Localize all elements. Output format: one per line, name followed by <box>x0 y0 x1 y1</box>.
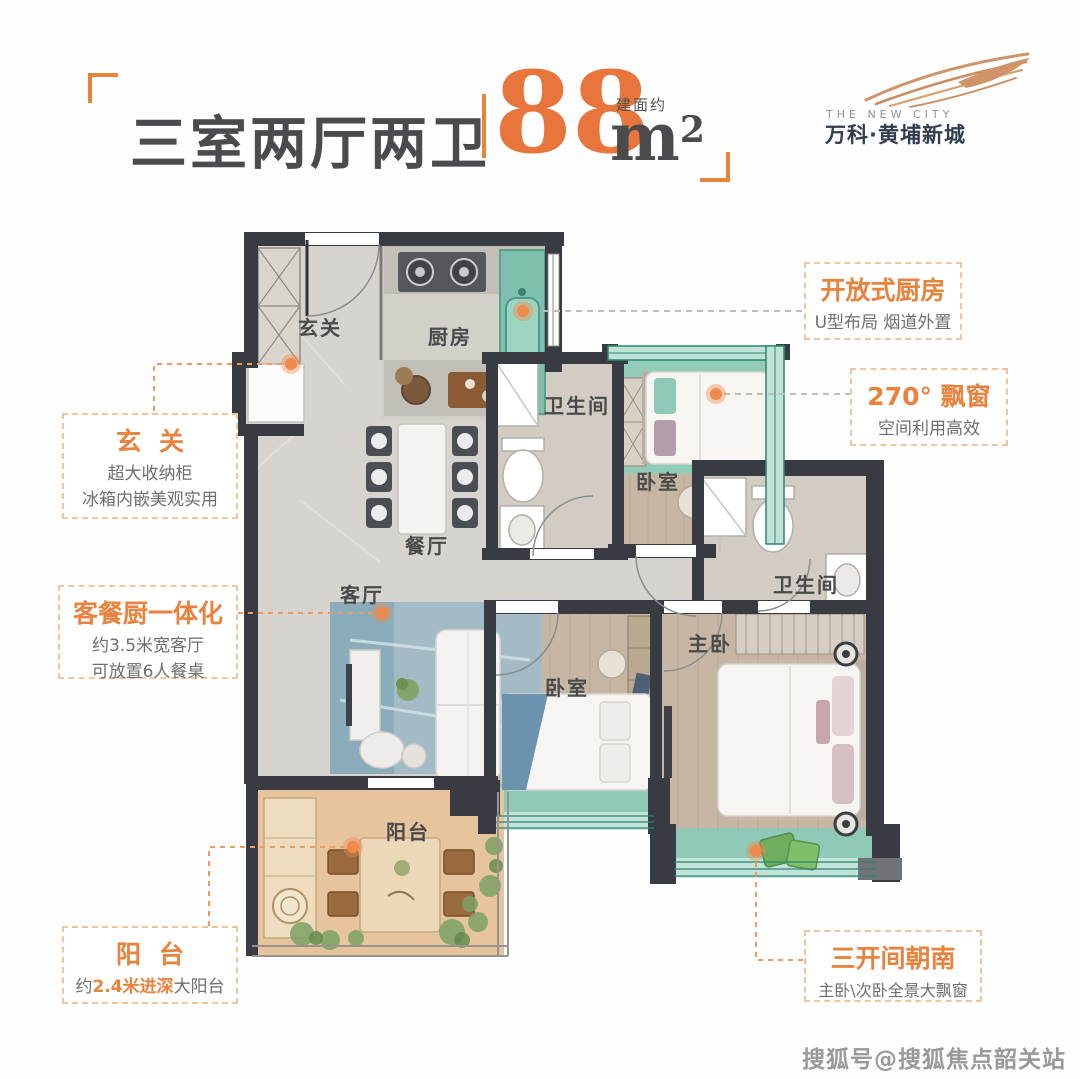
callout-south-line1: 主卧\次卧全景大飘窗 <box>806 979 980 1003</box>
callout-bay-window: 270° 飘窗 空间利用高效 <box>850 368 1008 446</box>
title-bracket-bottom-right <box>700 152 730 182</box>
promo-page: 玄关 厨房 卫生间 卧室 餐厅 客厅 卫生间 主卧 卧室 阳台 <box>0 0 1080 1079</box>
callout-balcony-prefix: 约 <box>75 977 92 997</box>
label-balcony: 阳台 <box>386 820 430 844</box>
room-dining <box>366 424 478 534</box>
callout-living-title: 客餐厨一体化 <box>60 599 236 629</box>
callout-living-line2: 可放置6人餐桌 <box>60 660 236 686</box>
callout-living: 客餐厨一体化 约3.5米宽客厅 可放置6人餐桌 <box>58 585 238 679</box>
label-master: 主卧 <box>688 632 732 656</box>
callout-entry-title: 玄关 <box>64 427 236 457</box>
callout-balcony: 阳台 约2.4米进深大阳台 <box>62 926 238 1004</box>
label-bath2: 卫生间 <box>773 573 839 597</box>
label-bedroom2: 卧室 <box>545 676 589 700</box>
label-dining: 餐厅 <box>405 534 449 558</box>
page-title: 三室两厅两卫 <box>130 98 490 180</box>
area-unit: m2 <box>610 104 705 170</box>
callout-kitchen-line1: U型布局 烟道外置 <box>806 311 960 337</box>
callout-entry-line1: 超大收纳柜 <box>64 462 236 488</box>
callout-balcony-suffix: 大阳台 <box>174 977 225 997</box>
callout-balcony-line1: 约2.4米进深大阳台 <box>64 975 236 1001</box>
title-bracket-top-left <box>88 73 118 103</box>
callout-bay-line1: 空间利用高效 <box>852 417 1006 443</box>
callout-living-line1: 约3.5米宽客厅 <box>60 634 236 660</box>
callout-kitchen: 开放式厨房 U型布局 烟道外置 <box>804 262 962 340</box>
callout-bay-title: 270° 飘窗 <box>852 382 1006 412</box>
callout-south-facing: 三开间朝南 主卧\次卧全景大飘窗 <box>804 930 982 1002</box>
area-unit-sup: 2 <box>680 109 705 151</box>
callout-balcony-highlight: 2.4米进深 <box>92 977 173 997</box>
label-bath1: 卫生间 <box>544 394 610 418</box>
callout-balcony-title: 阳台 <box>64 940 236 970</box>
callout-south-title: 三开间朝南 <box>806 944 980 974</box>
label-bedroom1: 卧室 <box>636 470 680 494</box>
callout-kitchen-title: 开放式厨房 <box>806 276 960 306</box>
area-unit-letter: m <box>610 98 680 176</box>
logo-swoosh-icon <box>862 48 1032 110</box>
label-entry: 玄关 <box>298 316 342 340</box>
label-living: 客厅 <box>339 583 384 607</box>
label-kitchen: 厨房 <box>428 325 472 349</box>
title-divider <box>482 94 486 158</box>
watermark: 搜狐号@搜狐焦点韶关站 <box>802 1040 1066 1074</box>
callout-entry-line2: 冰箱内嵌美观实用 <box>64 488 236 514</box>
logo-brand: 万科·黄埔新城 <box>825 119 966 149</box>
callout-entry: 玄关 超大收纳柜 冰箱内嵌美观实用 <box>62 413 238 519</box>
